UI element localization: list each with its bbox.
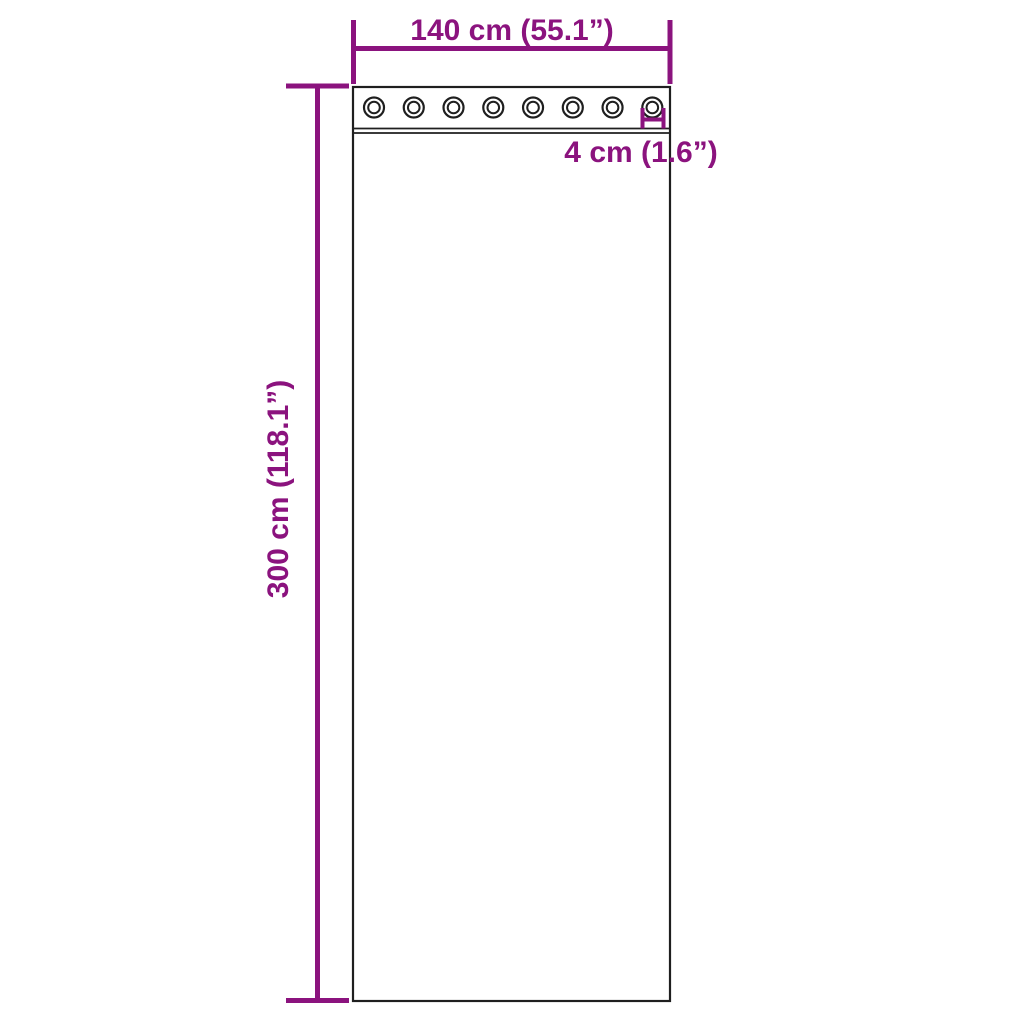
grommet-inner-ring: [368, 102, 380, 114]
grommet: [444, 98, 464, 118]
grommet-inner-ring: [647, 102, 659, 114]
width-dimension-label: 140 cm (55.1”): [410, 14, 613, 47]
grommet: [603, 98, 623, 118]
grommet-inner-ring: [448, 102, 460, 114]
grommet: [404, 98, 424, 118]
grommet: [563, 98, 583, 118]
grommet-inner-ring: [487, 102, 499, 114]
grommet-inner-ring: [567, 102, 579, 114]
grommet: [523, 98, 543, 118]
grommet-inner-ring: [527, 102, 539, 114]
grommet-inner-ring: [408, 102, 420, 114]
diagram-svg: 140 cm (55.1”) 4 cm (1.6”) 300 cm (118.1…: [0, 0, 1024, 1024]
height-dimension-label: 300 cm (118.1”): [262, 380, 295, 598]
grommet: [483, 98, 503, 118]
curtain-outline: [353, 87, 670, 1001]
grommet: [364, 98, 384, 118]
grommet-inner-ring: [607, 102, 619, 114]
grommet-diameter-label: 4 cm (1.6”): [564, 136, 717, 169]
dimension-diagram: 140 cm (55.1”) 4 cm (1.6”) 300 cm (118.1…: [0, 0, 1024, 1024]
grommet: [642, 98, 662, 118]
